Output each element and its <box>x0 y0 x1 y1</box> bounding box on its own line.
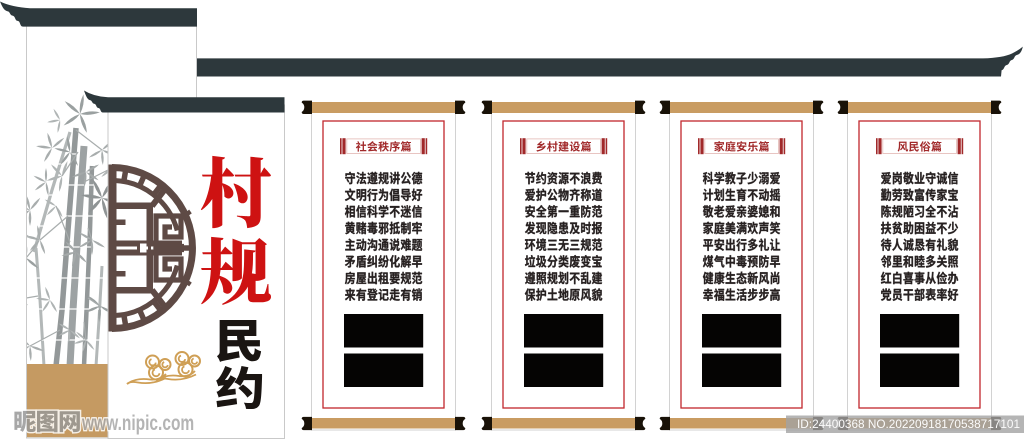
svg-text:ID:24400368 NO.202209181705387: ID:24400368 NO.20220918170538717101 <box>797 417 1020 431</box>
svg-text:www.nipic.com: www.nipic.com <box>81 411 194 435</box>
